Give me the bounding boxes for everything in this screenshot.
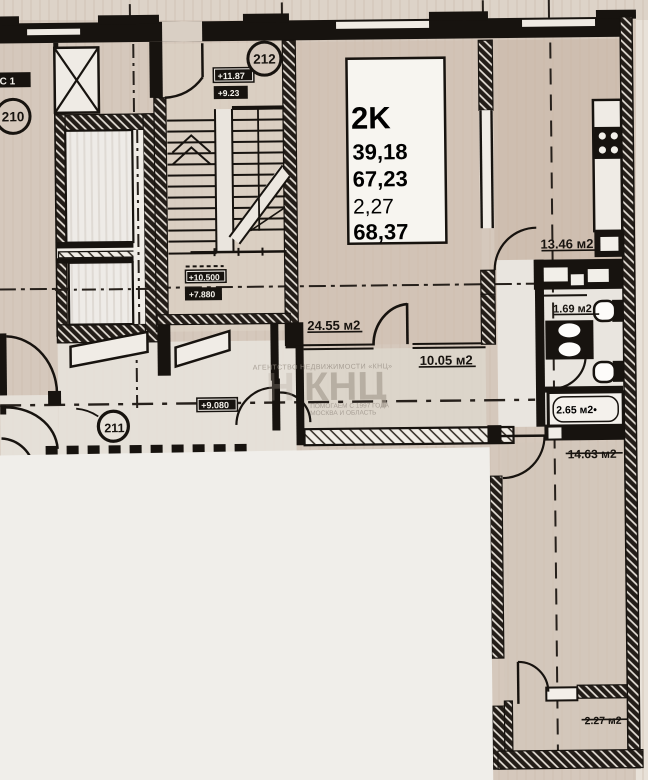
svg-text:10.05 м2: 10.05 м2 (420, 352, 473, 368)
svg-text:39,18: 39,18 (352, 139, 407, 165)
svg-text:2.27 м2: 2.27 м2 (585, 715, 622, 727)
svg-text:24.55 м2: 24.55 м2 (307, 318, 360, 334)
svg-text:67,23: 67,23 (353, 166, 408, 192)
svg-text:2,27: 2,27 (353, 195, 394, 218)
svg-text:210: 210 (2, 109, 25, 124)
svg-text:Н: Н (266, 365, 295, 409)
svg-text:2.65 м2•: 2.65 м2• (556, 404, 597, 416)
svg-text:68,37: 68,37 (353, 219, 408, 245)
svg-text:13.46 м2: 13.46 м2 (540, 236, 593, 252)
svg-text:+7.880: +7.880 (189, 289, 216, 299)
svg-text:С 1: С 1 (0, 76, 16, 87)
svg-text:+9.23: +9.23 (218, 88, 240, 98)
svg-text:14.63 м2: 14.63 м2 (568, 447, 617, 462)
svg-text:МОСКВА И ОБЛАСТЬ: МОСКВА И ОБЛАСТЬ (310, 409, 376, 417)
svg-text:+10.500: +10.500 (189, 272, 220, 282)
svg-text:212: 212 (253, 52, 276, 67)
svg-text:211: 211 (104, 421, 124, 435)
svg-text:+9.080: +9.080 (201, 400, 229, 410)
svg-text:+11.87: +11.87 (218, 71, 245, 81)
svg-text:2K: 2K (351, 100, 392, 135)
